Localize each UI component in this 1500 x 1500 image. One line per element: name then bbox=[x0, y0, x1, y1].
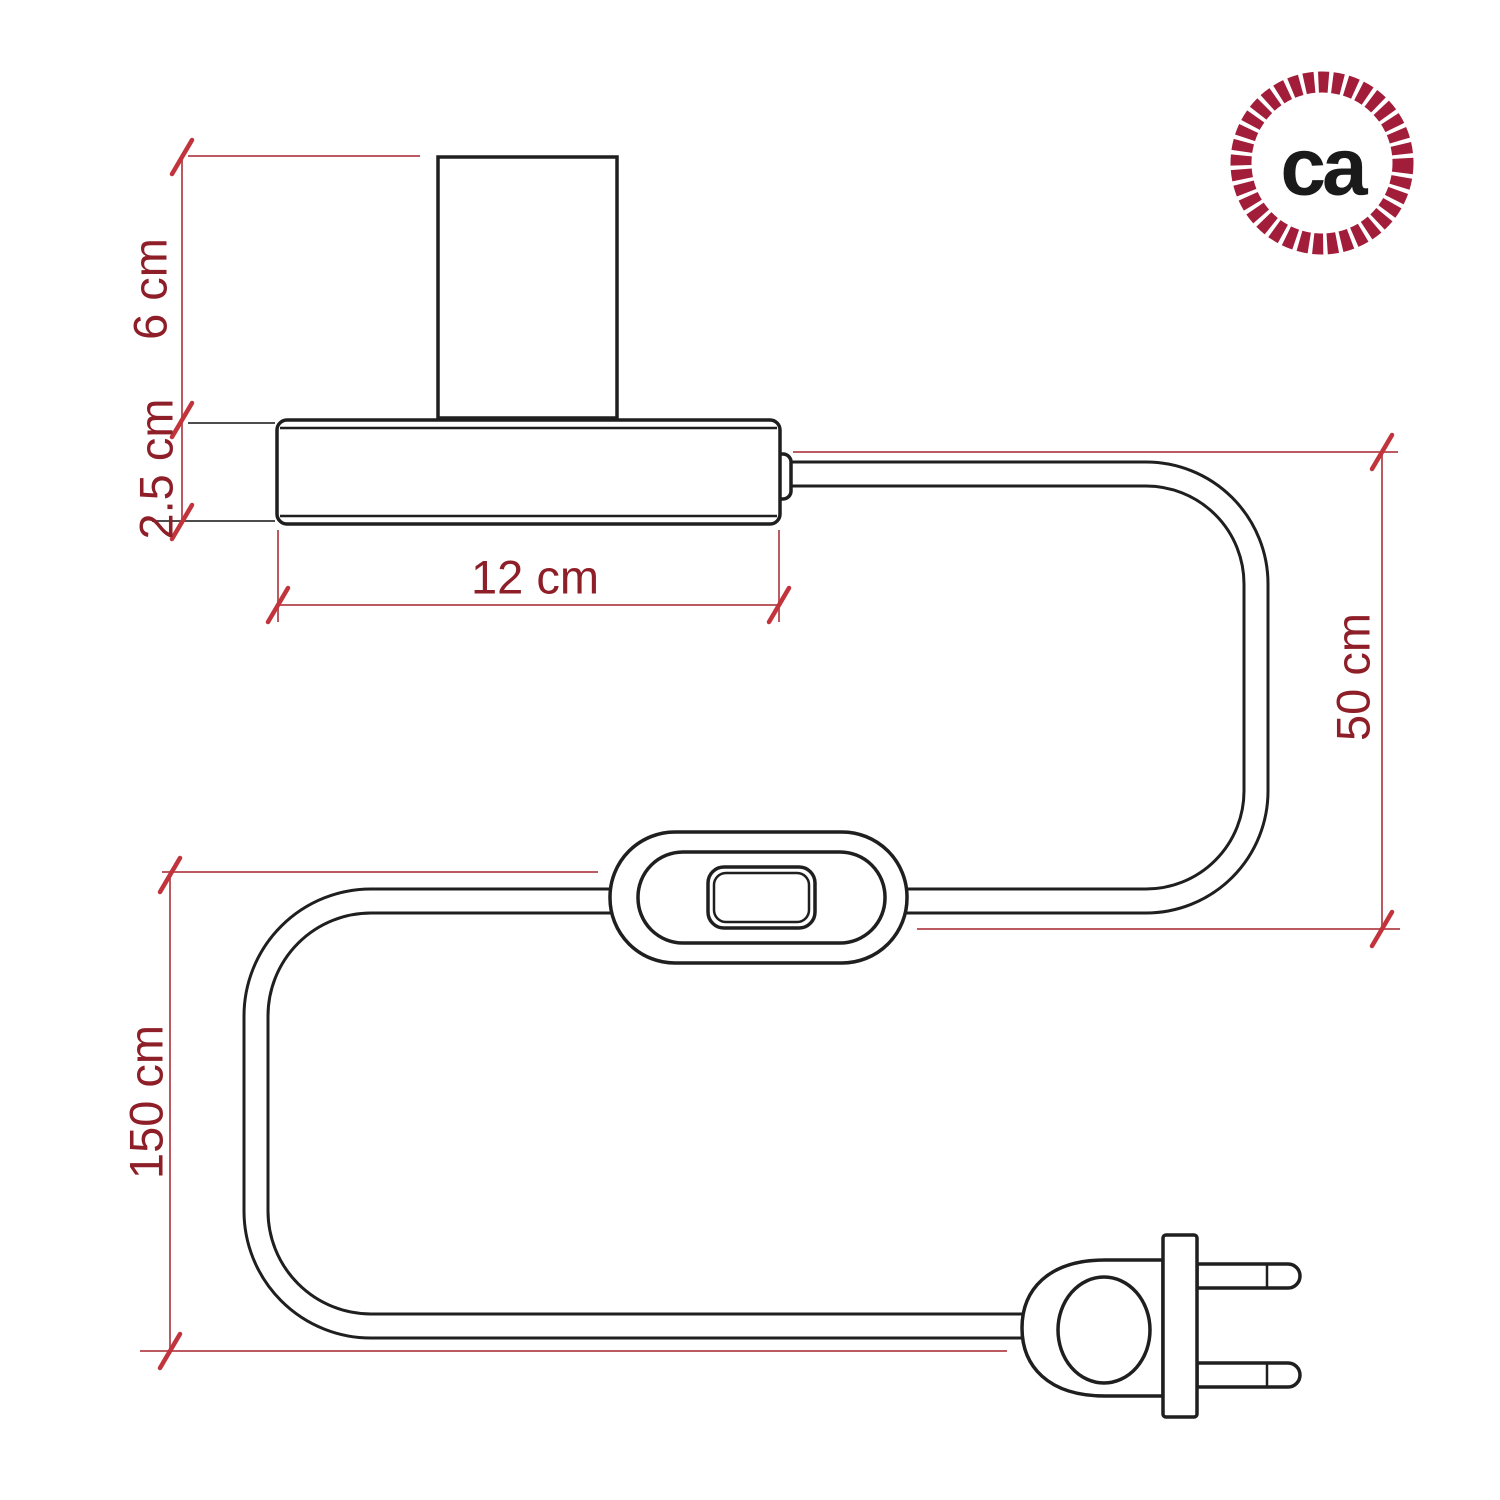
label-base-height: 2.5 cm bbox=[130, 398, 183, 539]
inline-switch bbox=[610, 832, 907, 963]
plug-prong-bottom bbox=[1197, 1363, 1300, 1387]
brand-logo-text: ca bbox=[1280, 122, 1369, 213]
diagram-canvas: 6 cm 2.5 cm 12 cm 50 cm 150 cm ca bbox=[0, 0, 1500, 1500]
label-cable-50: 50 cm bbox=[1327, 613, 1380, 741]
power-cable-lower bbox=[256, 901, 1040, 1326]
lamp-socket bbox=[438, 157, 617, 418]
dimension-extension-lines bbox=[140, 156, 1400, 1351]
product-dimension-diagram: 6 cm 2.5 cm 12 cm 50 cm 150 cm ca bbox=[0, 0, 1500, 1500]
label-cable-150: 150 cm bbox=[120, 1025, 173, 1179]
plug-face-plate bbox=[1163, 1235, 1197, 1417]
plug-prong-top bbox=[1197, 1264, 1300, 1288]
label-base-width: 12 cm bbox=[471, 551, 599, 604]
brand-logo: ca bbox=[1241, 82, 1403, 244]
power-plug bbox=[1022, 1235, 1300, 1417]
plug-screw-circle bbox=[1058, 1277, 1150, 1383]
dimension-tick-marks bbox=[160, 140, 1392, 1368]
dimension-labels: 6 cm 2.5 cm 12 cm 50 cm 150 cm bbox=[120, 238, 1380, 1179]
label-socket-height: 6 cm bbox=[124, 238, 177, 340]
lamp-base bbox=[277, 420, 780, 524]
